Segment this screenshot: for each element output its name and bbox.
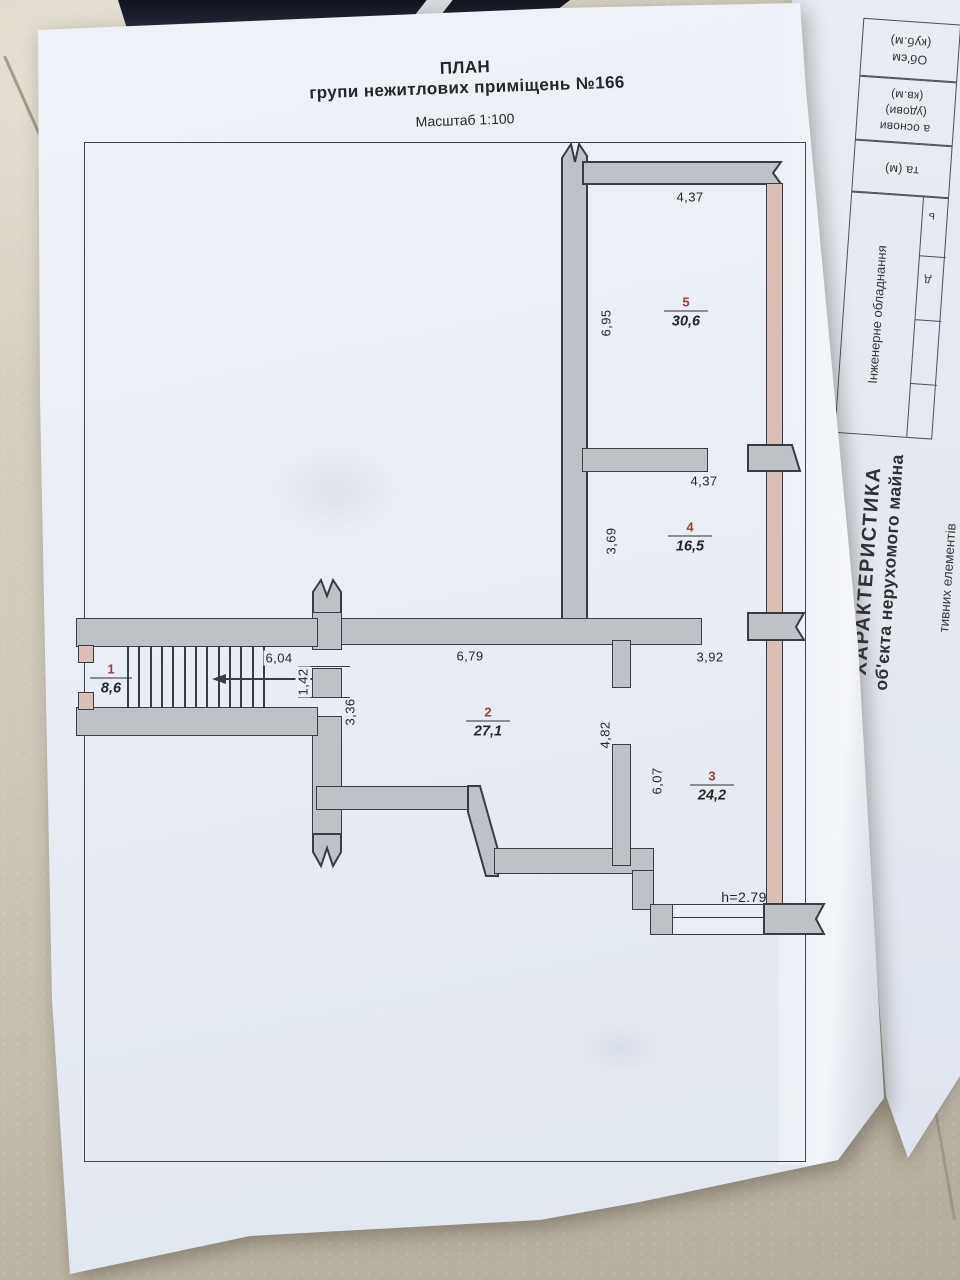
stair-tread (150, 646, 152, 707)
room-1-area: 8,6 (90, 678, 132, 697)
wall-room2-bottom-left (316, 786, 472, 810)
wall-room5-room4-divider (582, 448, 708, 472)
stair-tread (206, 646, 208, 707)
dim-door-left: 1,42 (296, 667, 311, 698)
wall-room2-left-break-bottom (306, 832, 348, 870)
room-label-5: 5 30,6 (664, 295, 708, 330)
dim-room5-left: 6,95 (599, 310, 614, 337)
wall-exterior-right-upper (766, 183, 783, 450)
room-4-area: 16,5 (668, 536, 712, 555)
window-room5 (746, 443, 804, 474)
room-label-3: 3 24,2 (690, 769, 734, 804)
window-room4 (746, 611, 812, 643)
room-5-area: 30,6 (664, 311, 708, 330)
plan-title: ПЛАН (440, 57, 491, 79)
wall-stair-top (76, 618, 318, 647)
stair-tread (184, 646, 186, 707)
plan-subtitle: групи нежитлових приміщень №166 (309, 72, 625, 103)
wall-room5-top (582, 158, 786, 188)
stair-tread (161, 646, 163, 707)
wall-room5-left (556, 140, 592, 626)
plan-sheet-shadow: ПЛАН групи нежитлових приміщень №166 Мас… (0, 0, 960, 1280)
wall-room2-left-b (312, 668, 342, 698)
room-label-2: 2 27,1 (466, 705, 510, 740)
wall-stair-cap-upper (78, 645, 94, 663)
stair-tread (172, 646, 174, 707)
stair-tread (195, 646, 197, 707)
wall-room3-bottom-left-pier (650, 904, 674, 935)
stair-tread (252, 646, 254, 707)
dim-corridor-top: 6,79 (457, 649, 484, 664)
room-4-number: 4 (668, 520, 712, 536)
room-2-number: 2 (466, 705, 510, 721)
dim-room3-left: 6,07 (650, 768, 665, 795)
dim-room2-mid: 4,82 (598, 722, 613, 749)
room-2-area: 27,1 (466, 721, 510, 740)
plan-scale: Масштаб 1:100 (415, 110, 514, 129)
stair-tread (240, 646, 242, 707)
dim-room5-top: 4,37 (677, 190, 704, 205)
wall-partition-lower (612, 744, 631, 866)
wall-exterior-right-middle (766, 471, 783, 617)
stair-direction-arrow (212, 674, 226, 684)
dim-room3-top: 3,92 (697, 650, 724, 665)
wall-partition-stub (612, 640, 631, 688)
dim-room2-left: 3,36 (343, 699, 358, 726)
dim-stair-top: 6,04 (264, 651, 295, 666)
room-3-number: 3 (690, 769, 734, 785)
stair-tread (229, 646, 231, 707)
room-3-area: 24,2 (690, 785, 734, 804)
room-label-1: 1 8,6 (90, 662, 132, 697)
photo-scene: Об'єм (куб.м) а основи (удови) (кв.м) та… (0, 0, 960, 1280)
dim-room4-top: 4,37 (691, 474, 718, 489)
wall-exterior-right-lower (766, 640, 783, 910)
room-label-4: 4 16,5 (668, 520, 712, 555)
stair-tread (138, 646, 140, 707)
window-room3 (672, 904, 764, 935)
wall-stair-bottom (76, 707, 318, 736)
window-room3-midline (673, 917, 763, 918)
wall-room3-bottom-right-pier (762, 902, 836, 937)
room-1-number: 1 (90, 662, 132, 678)
room-5-number: 5 (664, 295, 708, 311)
ceiling-height-note: h=2.79 (721, 889, 767, 905)
plan-sheet: ПЛАН групи нежитлових приміщень №166 Мас… (0, 0, 960, 1280)
dim-room4-left: 3,69 (604, 528, 619, 555)
wall-corridor-top (336, 618, 702, 645)
